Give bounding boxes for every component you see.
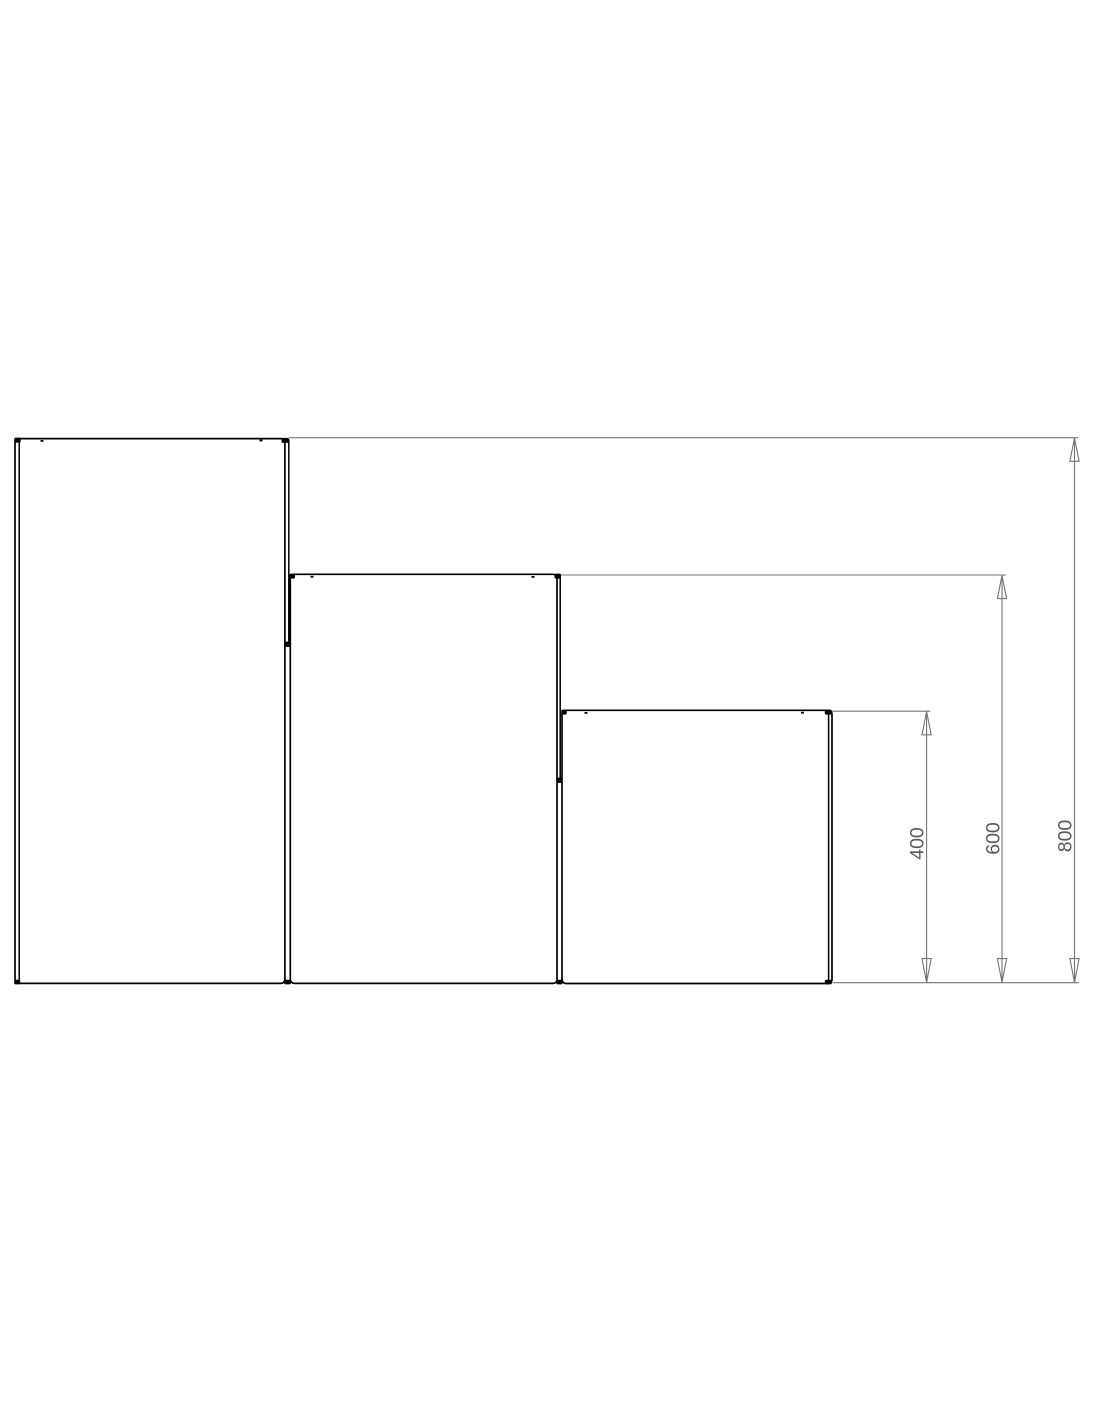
svg-text:600: 600 [983,822,1005,855]
svg-text:800: 800 [1055,820,1077,853]
svg-text:400: 400 [907,827,929,860]
